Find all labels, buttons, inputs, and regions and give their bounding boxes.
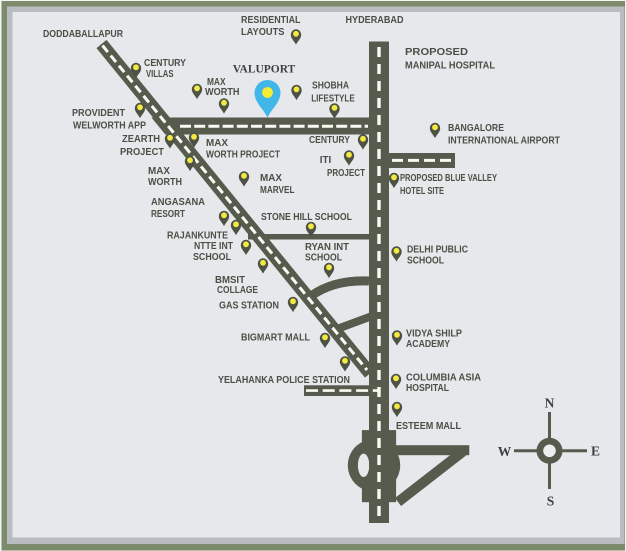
svg-text:WORTH PROJECT: WORTH PROJECT: [206, 149, 280, 161]
svg-text:HYDERABAD: HYDERABAD: [346, 14, 404, 26]
svg-text:YELAHANKA POLICE STATION: YELAHANKA POLICE STATION: [218, 374, 350, 386]
svg-text:MAX: MAX: [260, 172, 282, 184]
svg-text:PROVIDENT: PROVIDENT: [72, 107, 125, 119]
svg-text:LAYOUTS: LAYOUTS: [241, 26, 285, 38]
svg-text:ACADEMY: ACADEMY: [406, 338, 450, 350]
svg-text:HOTEL SITE: HOTEL SITE: [400, 185, 444, 197]
svg-text:LIFESTYLE: LIFESTYLE: [311, 92, 355, 104]
svg-text:GAS STATION: GAS STATION: [219, 300, 279, 312]
svg-text:SCHOOL: SCHOOL: [305, 251, 342, 263]
svg-text:MAX: MAX: [206, 137, 228, 149]
svg-text:PROPOSED BLUE VALLEY: PROPOSED BLUE VALLEY: [400, 172, 497, 184]
svg-text:PROJECT: PROJECT: [327, 167, 365, 179]
svg-text:MARVEL: MARVEL: [260, 184, 295, 196]
svg-text:DODDABALLAPUR: DODDABALLAPUR: [43, 28, 123, 40]
svg-text:INTERNATIONAL AIRPORT: INTERNATIONAL AIRPORT: [448, 135, 560, 147]
svg-text:PROPOSED: PROPOSED: [405, 46, 468, 58]
svg-text:N: N: [545, 396, 555, 411]
svg-text:SCHOOL: SCHOOL: [407, 255, 444, 267]
svg-text:VALUPORT: VALUPORT: [233, 64, 296, 76]
svg-text:ZEARTH: ZEARTH: [122, 133, 160, 145]
svg-text:COLLAGE: COLLAGE: [217, 284, 258, 296]
svg-text:STONE HILL SCHOOL: STONE HILL SCHOOL: [261, 211, 352, 223]
svg-text:SCHOOL: SCHOOL: [193, 251, 231, 263]
svg-text:HOSPITAL: HOSPITAL: [406, 382, 449, 394]
svg-text:SHOBHA: SHOBHA: [312, 80, 349, 92]
svg-text:VILLAS: VILLAS: [146, 68, 174, 80]
svg-text:WORTH: WORTH: [148, 176, 182, 188]
svg-text:CENTURY: CENTURY: [309, 134, 350, 146]
svg-text:ITI: ITI: [320, 154, 332, 166]
svg-text:W: W: [498, 444, 512, 459]
svg-text:PROJECT: PROJECT: [120, 146, 165, 158]
svg-text:S: S: [547, 494, 555, 509]
svg-text:E: E: [591, 444, 600, 459]
svg-text:RESIDENTIAL: RESIDENTIAL: [241, 14, 301, 26]
svg-text:WORTH: WORTH: [205, 86, 240, 98]
svg-text:ESTEEM MALL: ESTEEM MALL: [396, 420, 462, 432]
svg-text:RESORT: RESORT: [151, 208, 185, 220]
svg-text:BANGALORE: BANGALORE: [448, 122, 504, 134]
svg-text:MANIPAL HOSPITAL: MANIPAL HOSPITAL: [405, 60, 496, 72]
svg-text:ANGASANA: ANGASANA: [151, 196, 205, 208]
svg-text:WELWORTH APP: WELWORTH APP: [73, 120, 146, 132]
svg-text:BIGMART MALL: BIGMART MALL: [241, 332, 310, 344]
